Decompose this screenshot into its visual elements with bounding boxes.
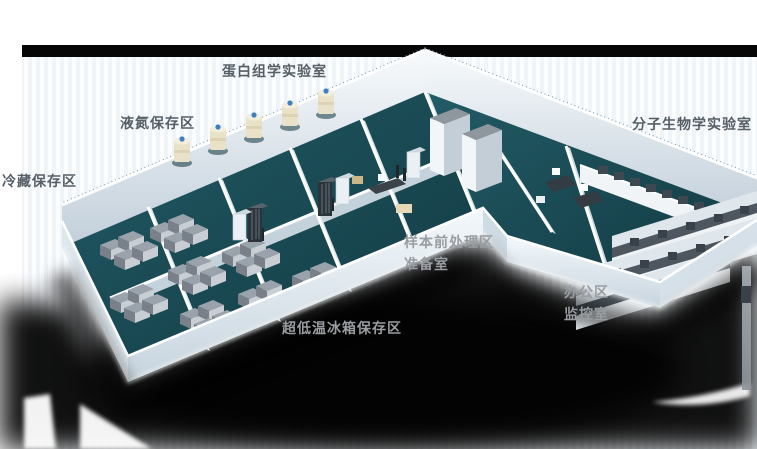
lab-floorplan-render: 蛋白组学实验室 液氮保存区 冷藏保存区 分子生物学实验室 样本前处理区 准备室 … [0, 0, 757, 449]
label-liquid-nitrogen-storage: 液氮保存区 [120, 115, 195, 132]
isometric-building-scene: 蛋白组学实验室 液氮保存区 冷藏保存区 分子生物学实验室 样本前处理区 准备室 … [0, 0, 757, 449]
label-ult-freezer-storage: 超低温冰箱保存区 [281, 320, 402, 337]
label-monitoring-room: 监控室 [564, 306, 609, 323]
label-prep-room: 准备室 [404, 256, 449, 273]
label-cold-storage: 冷藏保存区 [2, 173, 77, 190]
label-molecular-biology-lab: 分子生物学实验室 [632, 116, 752, 133]
label-sample-pretreatment: 样本前处理区 [404, 234, 494, 251]
label-office-area: 办公区 [564, 284, 609, 301]
top-divider-bar [22, 45, 757, 57]
label-proteomics-lab: 蛋白组学实验室 [222, 63, 327, 80]
